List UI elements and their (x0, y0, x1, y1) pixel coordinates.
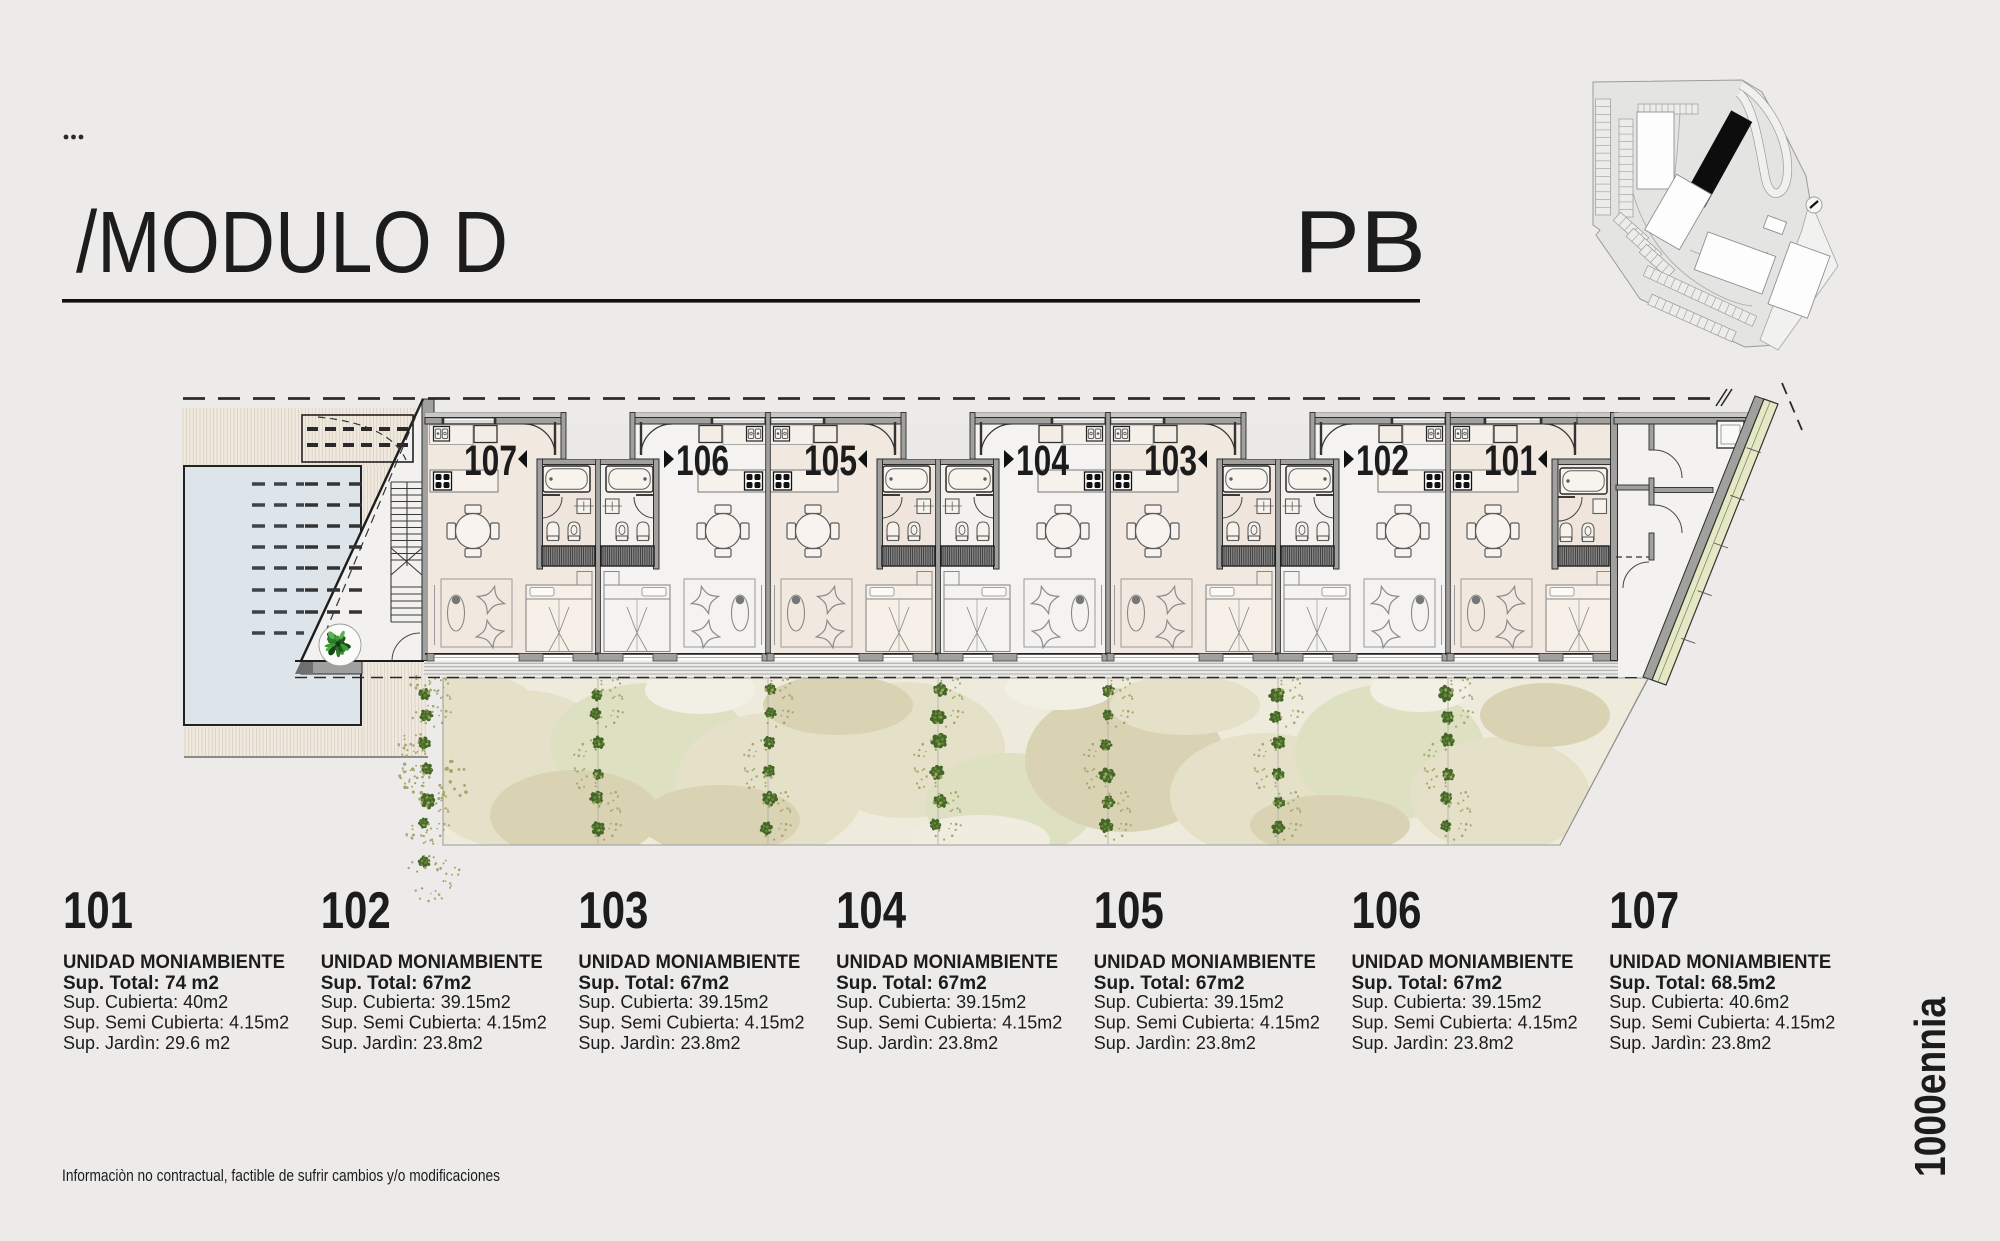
svg-text:Sup. Total: 68.5m2: Sup. Total: 68.5m2 (1609, 973, 1775, 994)
svg-text:UNIDAD MONIAMBIENTE: UNIDAD MONIAMBIENTE (63, 951, 285, 973)
svg-text:Sup. Semi Cubierta: 4.15m2: Sup. Semi Cubierta: 4.15m2 (836, 1013, 1062, 1033)
svg-text:105: 105 (1094, 882, 1164, 940)
svg-text:104: 104 (836, 882, 906, 940)
svg-text:Sup. Cubierta: 39.15m2: Sup. Cubierta: 39.15m2 (321, 992, 511, 1012)
svg-text:UNIDAD MONIAMBIENTE: UNIDAD MONIAMBIENTE (1352, 951, 1574, 973)
svg-text:103: 103 (578, 882, 648, 940)
svg-text:Sup. Jardìn: 23.8m2: Sup. Jardìn: 23.8m2 (321, 1033, 483, 1053)
svg-text:Sup. Total: 67m2: Sup. Total: 67m2 (1352, 973, 1503, 994)
svg-text:Sup. Cubierta: 39.15m2: Sup. Cubierta: 39.15m2 (1094, 992, 1284, 1012)
svg-text:Sup. Total: 67m2: Sup. Total: 67m2 (836, 973, 987, 994)
svg-text:101: 101 (63, 882, 133, 940)
svg-text:101: 101 (1484, 437, 1537, 485)
svg-text:UNIDAD MONIAMBIENTE: UNIDAD MONIAMBIENTE (836, 951, 1058, 973)
svg-text:Sup. Semi Cubierta: 4.15m2: Sup. Semi Cubierta: 4.15m2 (321, 1013, 547, 1033)
svg-text:Sup. Total: 67m2: Sup. Total: 67m2 (321, 973, 472, 994)
svg-text:Sup. Jardìn: 29.6 m2: Sup. Jardìn: 29.6 m2 (63, 1033, 230, 1053)
svg-text:Sup. Jardìn: 23.8m2: Sup. Jardìn: 23.8m2 (578, 1033, 740, 1053)
svg-text:UNIDAD MONIAMBIENTE: UNIDAD MONIAMBIENTE (321, 951, 543, 973)
svg-text:Sup. Total: 67m2: Sup. Total: 67m2 (578, 973, 729, 994)
svg-text:UNIDAD MONIAMBIENTE: UNIDAD MONIAMBIENTE (578, 951, 800, 973)
svg-text:Sup. Semi Cubierta: 4.15m2: Sup. Semi Cubierta: 4.15m2 (578, 1013, 804, 1033)
svg-text:Sup. Total: 74 m2: Sup. Total: 74 m2 (63, 973, 219, 994)
svg-text:PB: PB (1294, 192, 1426, 291)
svg-text:104: 104 (1016, 437, 1069, 485)
svg-text:Sup. Jardìn: 23.8m2: Sup. Jardìn: 23.8m2 (1094, 1033, 1256, 1053)
svg-text:Sup. Semi Cubierta: 4.15m2: Sup. Semi Cubierta: 4.15m2 (1352, 1013, 1578, 1033)
svg-text:Sup. Cubierta: 39.15m2: Sup. Cubierta: 39.15m2 (1352, 992, 1542, 1012)
svg-text:1000ennia: 1000ennia (1906, 997, 1955, 1177)
svg-text:/MODULO D: /MODULO D (76, 194, 508, 291)
svg-text:Sup. Cubierta: 39.15m2: Sup. Cubierta: 39.15m2 (578, 992, 768, 1012)
svg-text:Sup. Total: 67m2: Sup. Total: 67m2 (1094, 973, 1245, 994)
svg-text:Sup. Jardìn: 23.8m2: Sup. Jardìn: 23.8m2 (1352, 1033, 1514, 1053)
svg-text:Sup. Cubierta: 39.15m2: Sup. Cubierta: 39.15m2 (836, 992, 1026, 1012)
svg-text:103: 103 (1144, 437, 1197, 485)
svg-text:UNIDAD MONIAMBIENTE: UNIDAD MONIAMBIENTE (1609, 951, 1831, 973)
svg-text:Sup. Jardìn: 23.8m2: Sup. Jardìn: 23.8m2 (836, 1033, 998, 1053)
svg-text:105: 105 (804, 437, 857, 485)
svg-text:107: 107 (464, 437, 517, 485)
svg-text:102: 102 (1356, 437, 1409, 485)
svg-text:UNIDAD MONIAMBIENTE: UNIDAD MONIAMBIENTE (1094, 951, 1316, 973)
svg-text:Sup. Semi Cubierta: 4.15m2: Sup. Semi Cubierta: 4.15m2 (1609, 1013, 1835, 1033)
svg-text:Sup. Jardìn: 23.8m2: Sup. Jardìn: 23.8m2 (1609, 1033, 1771, 1053)
svg-text:Sup. Cubierta: 40.6m2: Sup. Cubierta: 40.6m2 (1609, 992, 1789, 1012)
svg-text:106: 106 (676, 437, 729, 485)
svg-text:107: 107 (1609, 882, 1679, 940)
svg-text:Sup. Semi Cubierta: 4.15m2: Sup. Semi Cubierta: 4.15m2 (63, 1013, 289, 1033)
svg-text:Sup. Semi Cubierta: 4.15m2: Sup. Semi Cubierta: 4.15m2 (1094, 1013, 1320, 1033)
svg-text:Sup. Cubierta: 40m2: Sup. Cubierta: 40m2 (63, 992, 228, 1012)
svg-text:Informaciòn no contractual, fa: Informaciòn no contractual, factible de … (62, 1167, 500, 1185)
svg-text:102: 102 (321, 882, 391, 940)
svg-text:106: 106 (1352, 882, 1422, 940)
